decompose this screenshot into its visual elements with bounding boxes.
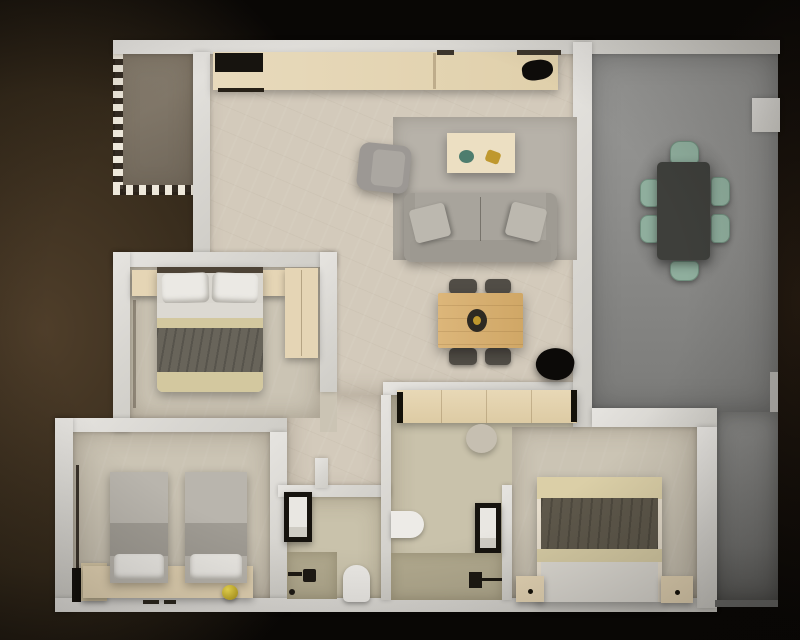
bathroom-vanity <box>391 553 502 600</box>
dining-chair <box>449 279 477 294</box>
wall-bedroom-twin-top <box>55 418 287 432</box>
dining-table <box>438 293 523 348</box>
shower-enclosure <box>284 492 312 542</box>
shower-enclosure <box>475 503 501 553</box>
bed-throw-blanket <box>541 498 658 549</box>
bed-pillow <box>161 272 209 304</box>
decor-yellow-ball <box>222 585 238 600</box>
hall-stool <box>466 424 497 453</box>
drawer-knob <box>675 590 680 595</box>
bed-pillow <box>114 554 164 580</box>
sofa-pillow-left <box>408 202 451 244</box>
floor-vent-dash <box>143 600 159 604</box>
faucet-handle <box>303 569 316 582</box>
wall-bedroom-twin-left <box>55 418 73 612</box>
wall-bedroom-back-right <box>697 427 717 608</box>
terrace-chair <box>670 261 699 281</box>
kitchen-cooktop <box>215 53 263 72</box>
terrace-dining-table <box>657 162 710 260</box>
terrace-chair <box>711 214 730 243</box>
terrace-chair <box>711 177 730 206</box>
twin-bed-band <box>185 523 247 556</box>
sofa-backrest <box>410 240 551 262</box>
washbasin <box>391 511 424 538</box>
drain-dot <box>289 589 295 595</box>
floor-plan-scene <box>0 0 800 640</box>
floor-vent-dash <box>164 600 176 604</box>
coffee-table-green-plate <box>459 150 474 163</box>
faucet-spout <box>288 572 302 576</box>
kitchen-counter <box>213 52 558 90</box>
dining-chair <box>449 348 477 365</box>
twin-bed <box>185 472 247 583</box>
closet-track-line <box>76 465 79 568</box>
dining-centerpiece-gold <box>473 316 481 325</box>
closet-block <box>72 568 81 602</box>
bed-blanket <box>537 477 662 499</box>
drawer-knob <box>528 589 533 594</box>
bed-sheet-fold <box>157 303 263 318</box>
balcony-railing-left <box>113 52 123 195</box>
terrace-chair <box>670 141 699 164</box>
dining-centerpiece <box>467 309 487 332</box>
sofa-seat-seam <box>480 197 481 241</box>
bed-headboard <box>157 267 263 273</box>
faucet-spout <box>482 578 502 581</box>
terrace-bottom-edge <box>715 600 778 607</box>
wall-bedroom-main-left <box>113 252 130 432</box>
double-bed-back <box>537 477 662 602</box>
sofa <box>404 193 557 262</box>
bedroom-main-wall-shadow <box>133 300 136 408</box>
toilet <box>343 565 370 602</box>
nightstand <box>661 576 693 603</box>
twin-bed <box>110 472 168 583</box>
bed-pillow <box>190 554 242 580</box>
wall-bedroom-back-top <box>592 408 717 427</box>
double-bed-main <box>157 267 263 392</box>
terrace-edge-notch <box>770 372 778 412</box>
terrace-wall-pillar <box>752 98 780 132</box>
dining-chair <box>485 348 511 365</box>
kitchen-backsplash-accent-2 <box>517 50 561 55</box>
nightstand <box>261 270 285 296</box>
hall-sideboard <box>397 390 577 423</box>
wall-bathroom-divider <box>381 395 391 600</box>
wall-bedroom-main-top <box>113 252 337 267</box>
kitchen-backsplash-accent-1 <box>437 50 454 55</box>
wall-bedroom-back-partition <box>502 485 512 600</box>
nightstand <box>132 270 158 296</box>
dining-chair <box>485 279 511 294</box>
kitchen-cooktop-edge <box>218 88 264 92</box>
twin-bed-band <box>110 523 168 556</box>
sideboard-end-cap <box>571 390 577 422</box>
bed-sheet-foot <box>541 562 658 602</box>
faucet-handle <box>469 572 482 588</box>
wardrobe <box>285 268 318 358</box>
armchair-seat <box>370 149 406 188</box>
coffee-table <box>447 133 515 173</box>
bed-blanket-strip <box>537 549 662 562</box>
kitchen-counter-seam <box>433 53 436 89</box>
sofa-pillow-right <box>504 201 547 243</box>
wardrobe-seam <box>301 270 302 356</box>
balcony-floor <box>115 52 193 192</box>
balcony-railing-bottom <box>113 185 193 195</box>
wall-bedroom-main-right <box>320 252 337 392</box>
terrace-floor-lower <box>715 412 778 603</box>
wall-hallway-stub <box>315 458 328 488</box>
sideboard-end-cap <box>397 392 403 423</box>
wall-balcony-divider <box>193 52 210 257</box>
bed-pillow <box>211 272 258 304</box>
nightstand <box>516 576 544 602</box>
bed-throw-blanket <box>157 328 263 372</box>
bedroom-main-door-opening <box>320 390 337 432</box>
armchair <box>356 141 413 194</box>
